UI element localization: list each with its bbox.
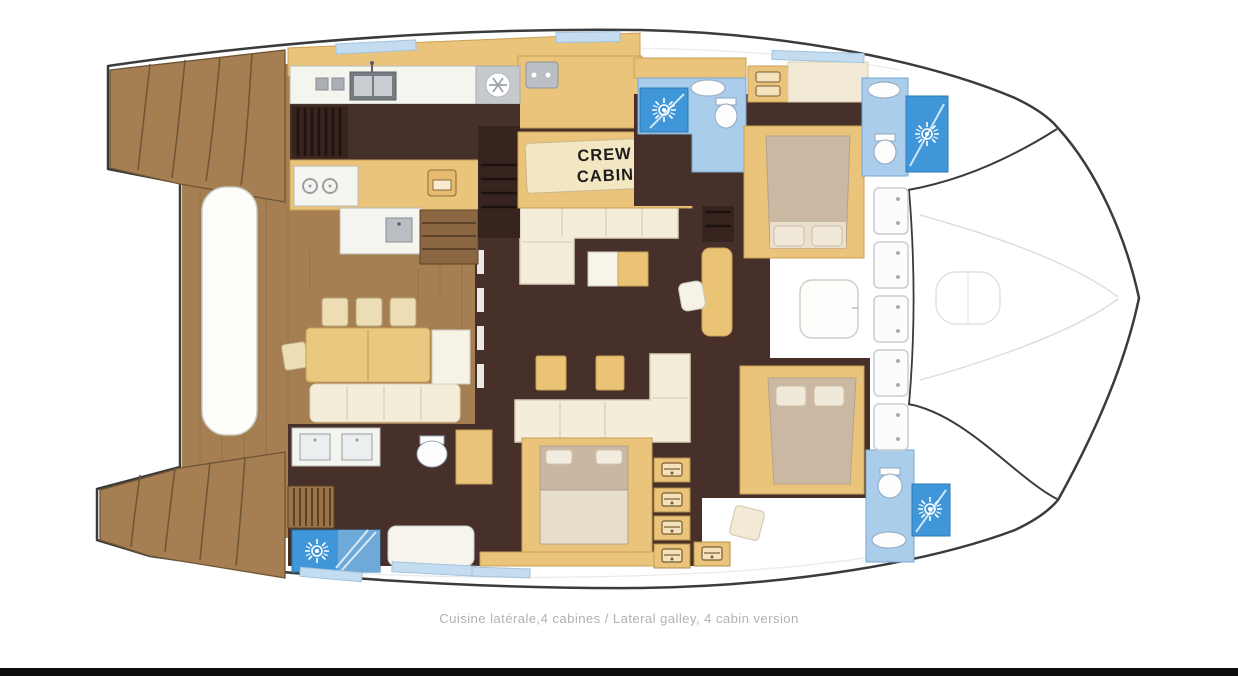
sink-icon <box>691 80 725 96</box>
companionway-steps-starboard <box>288 486 334 528</box>
aft-berth-seat <box>388 526 474 566</box>
toilet-icon <box>874 134 896 164</box>
cockpit-bench <box>310 384 460 422</box>
deck-hatch-icon <box>874 188 908 234</box>
counter-gray-section <box>476 66 520 104</box>
sink-icon <box>868 82 900 98</box>
vanity-double-sink <box>292 428 380 466</box>
port-forward-cabinet-strip <box>634 58 746 78</box>
cooktop <box>294 166 358 206</box>
deck-hatches <box>874 188 908 450</box>
shower-port-aft <box>640 88 688 132</box>
cabin-stool <box>729 505 765 541</box>
companionway-steps-port <box>292 106 348 158</box>
shower-icon <box>915 122 939 146</box>
deck-hatch-icon <box>874 296 908 342</box>
crew-cabin-label-line1: CREW <box>577 145 632 165</box>
footer-black-bar <box>0 668 1238 676</box>
deck-hatch-icon <box>874 404 908 450</box>
stern-steps-port <box>110 50 285 202</box>
toilet-icon <box>417 436 447 467</box>
locker-cabinet <box>748 66 788 102</box>
stairwell-dark <box>478 126 520 238</box>
plan-caption: Cuisine latérale,4 cabines / Lateral gal… <box>439 611 799 626</box>
toilet-icon <box>878 468 902 498</box>
shower-port-forward <box>906 96 948 172</box>
boat-floor-plan-page: CREW CABIN <box>0 0 1238 676</box>
cabin-base-strip <box>480 552 654 566</box>
shower-icon <box>305 539 329 563</box>
toilet-icon <box>715 98 737 128</box>
side-table <box>432 330 470 384</box>
port-forward-cabin-bed <box>744 126 864 258</box>
oven-icon <box>428 170 456 196</box>
wardrobe <box>456 430 492 484</box>
coachroof-door <box>800 280 858 338</box>
steps-down-to-hull <box>420 210 478 264</box>
shower-icon <box>918 497 942 521</box>
floor-plan-drawing: CREW CABIN <box>0 0 1238 676</box>
starboard-forward-cabin-bed <box>740 366 864 494</box>
appliance-icon <box>526 62 558 88</box>
crew-cabin-label-line2: CABIN <box>577 166 635 186</box>
shower-starboard-forward <box>912 484 950 536</box>
forward-berth-seat <box>788 62 868 102</box>
deck-hatch-icon <box>874 242 908 288</box>
deck-hatch-icon <box>874 350 908 396</box>
shower-icon <box>652 98 676 122</box>
stern-steps-starboard <box>100 452 285 578</box>
shower-starboard-aft <box>292 530 380 572</box>
starboard-aft-cabin-bed <box>522 438 652 558</box>
coffee-table <box>588 252 648 286</box>
sink-icon <box>872 532 906 548</box>
dining-table <box>306 328 430 382</box>
transom-bench <box>202 187 257 435</box>
island-counter <box>340 208 422 254</box>
